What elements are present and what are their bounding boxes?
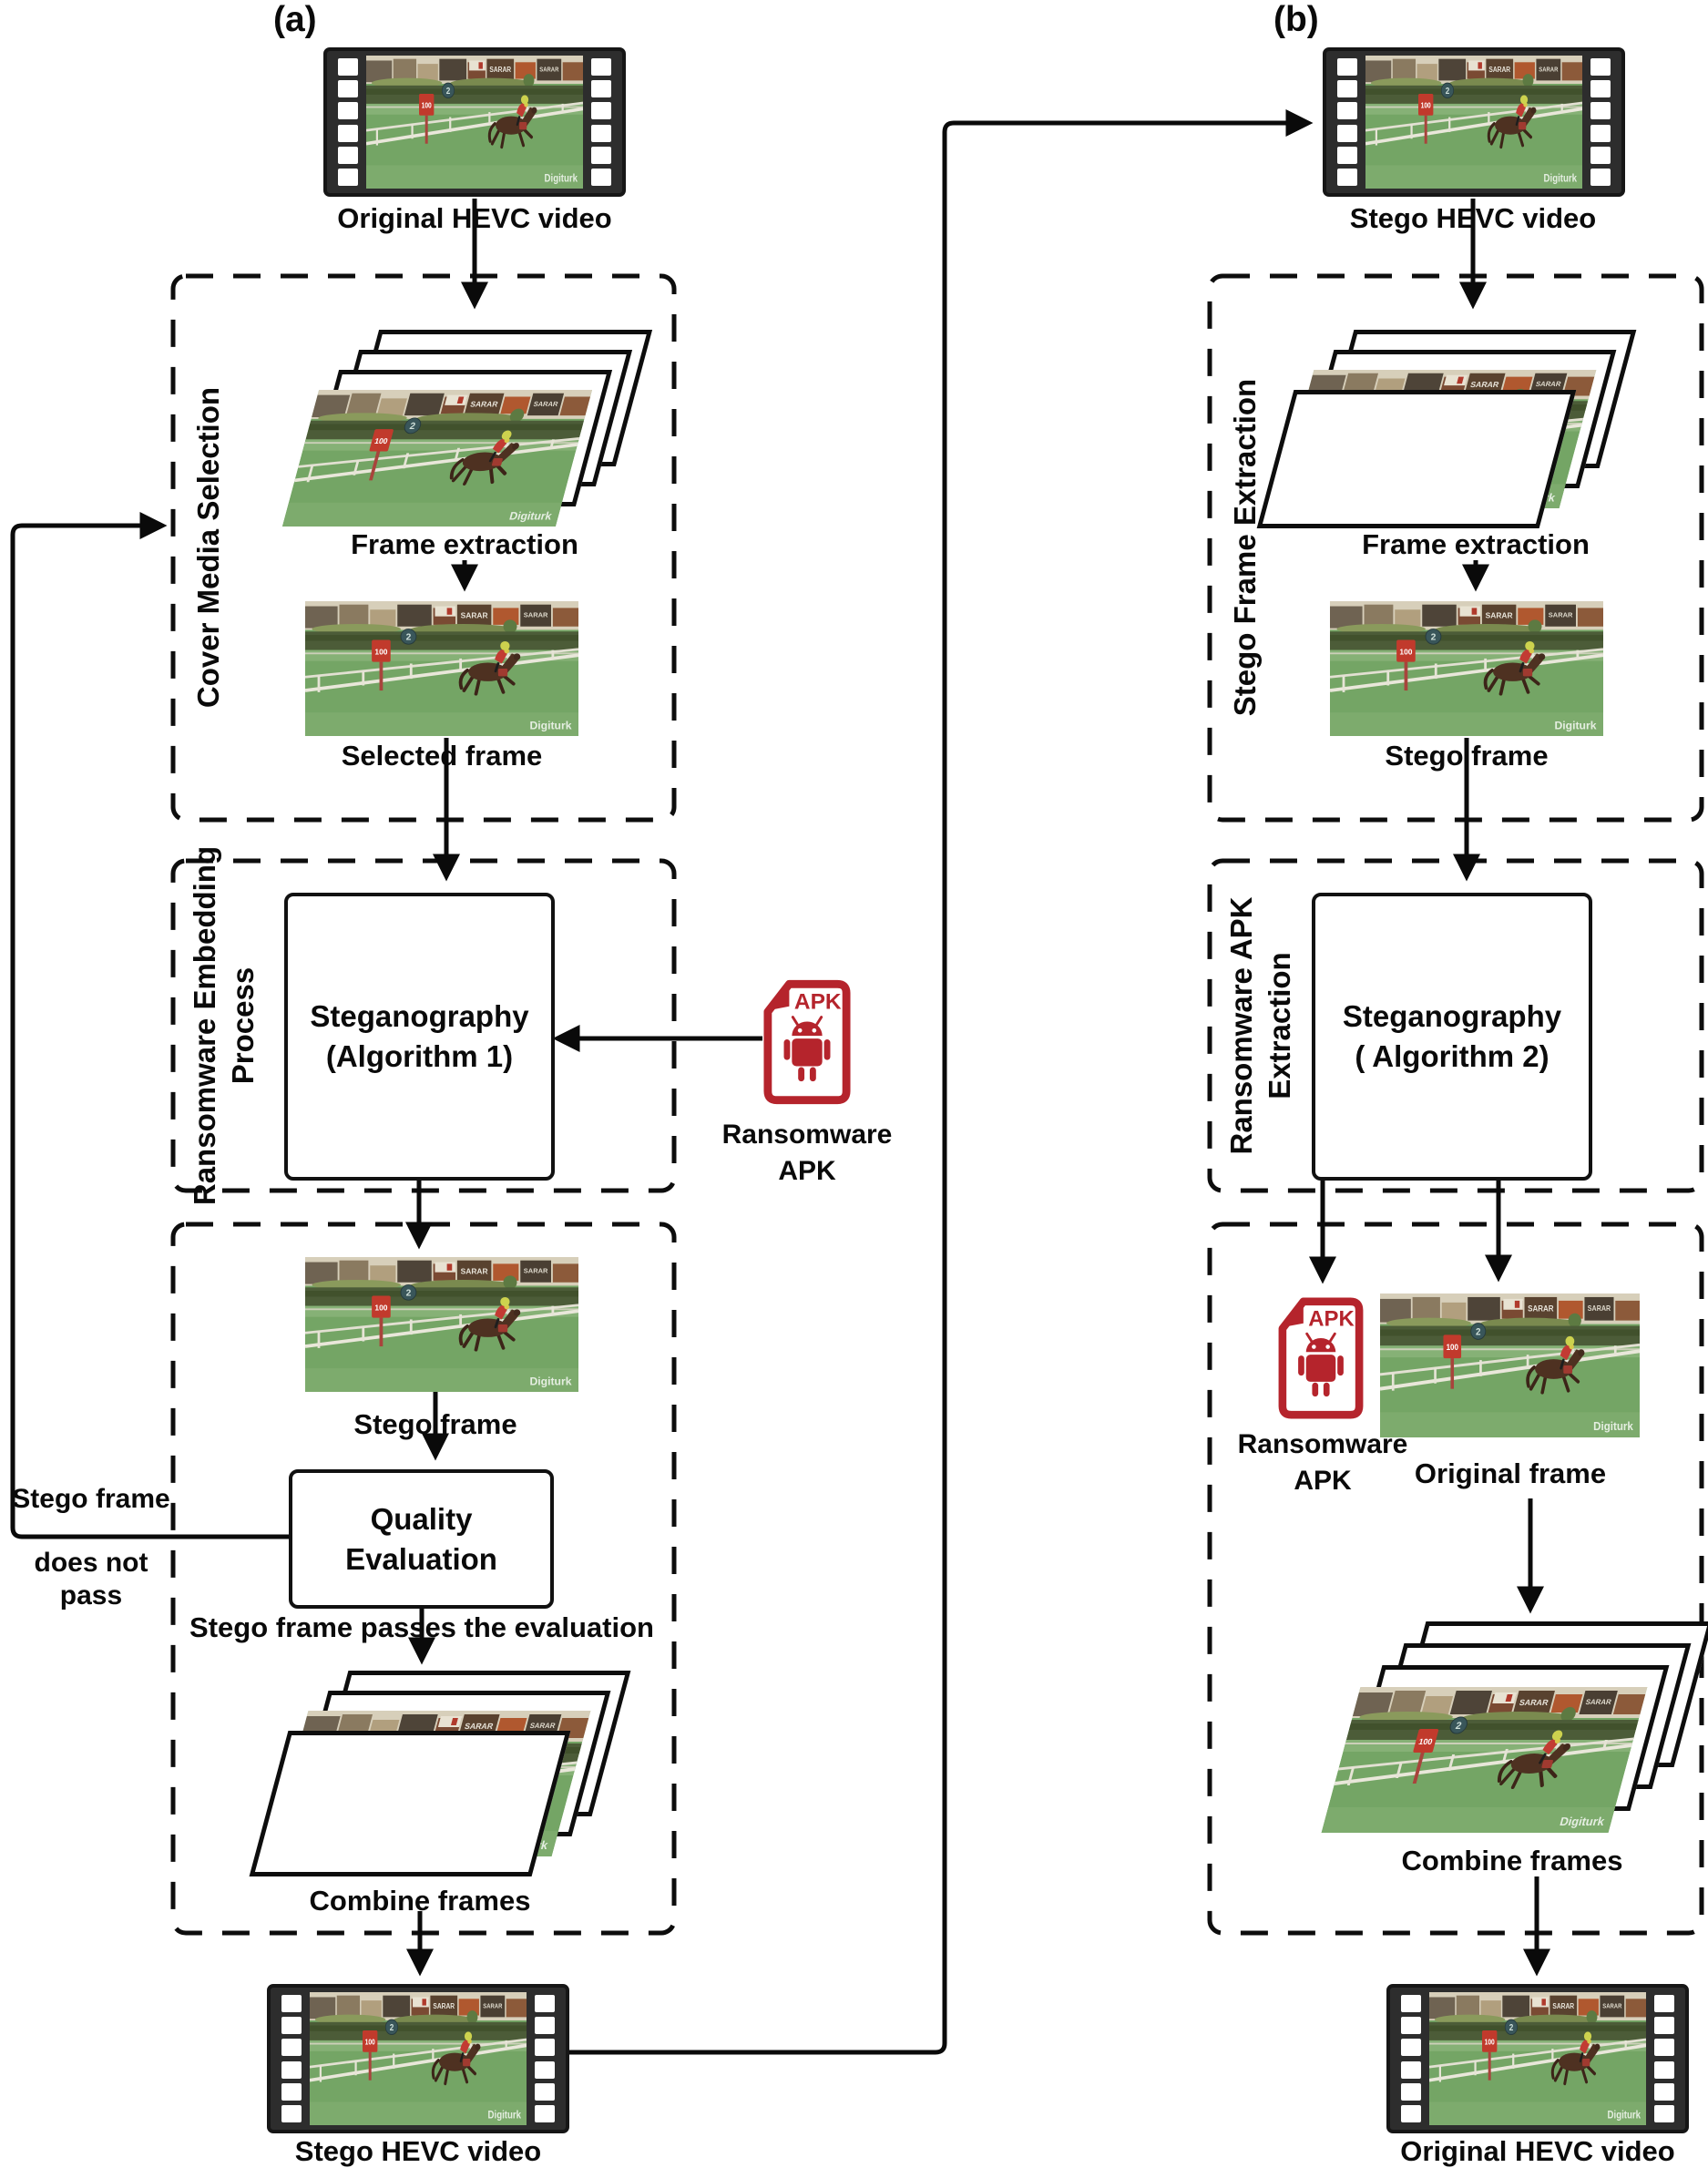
- label-stego-hevc-video-a: Stego HEVC video: [236, 2135, 600, 2168]
- connector-a-stego-video-to-b: [569, 123, 1306, 2052]
- video-frame-image: [310, 1992, 527, 2125]
- quality-evaluation-box: Quality Evaluation: [289, 1469, 554, 1609]
- diagram-canvas: SARAR SARAR: [0, 0, 1708, 2178]
- label-original-frame-b: Original frame: [1374, 1457, 1647, 1490]
- film-sprockets-left: [1393, 1992, 1429, 2125]
- title-ransomware-embedding-process: Ransomware Embedding Process: [186, 743, 264, 1308]
- label-original-hevc-video-a: Original HEVC video: [292, 202, 657, 235]
- label-does-not-pass-line1: Stego frame: [0, 1483, 182, 1516]
- video-frame-image: [366, 56, 583, 189]
- original-frame-image-b: [1380, 1294, 1640, 1437]
- film-sprockets-right: [583, 56, 619, 189]
- label-ransomware-apk-a: Ransomware APK: [716, 1117, 898, 1190]
- label-frame-extraction-b: Frame extraction: [1339, 528, 1612, 561]
- title-ransomware-apk-extraction: Ransomware APK Extraction: [1222, 743, 1301, 1308]
- label-stego-frame-a: Stego frame: [299, 1408, 572, 1441]
- film-strip-original-hevc-b: [1386, 1984, 1689, 2133]
- video-frame-image: [1365, 56, 1582, 189]
- combined-frame-image: [1322, 1687, 1648, 1833]
- film-sprockets-right: [1646, 1992, 1682, 2125]
- label-selected-frame: Selected frame: [305, 740, 578, 772]
- film-strip-original-hevc-a: [323, 47, 626, 197]
- film-sprockets-left: [273, 1992, 310, 2125]
- stego-frame-image-a: [305, 1257, 578, 1392]
- steganography-algorithm1-box: Steganography (Algorithm 1): [284, 893, 555, 1181]
- label-combine-frames-a: Combine frames: [283, 1885, 557, 1917]
- ransomware-apk-icon-b: [1277, 1297, 1365, 1419]
- label-stego-hevc-video-b: Stego HEVC video: [1291, 202, 1655, 235]
- film-sprockets-left: [330, 56, 366, 189]
- film-sprockets-left: [1329, 56, 1365, 189]
- label-frame-extraction-a: Frame extraction: [328, 528, 601, 561]
- panel-a-tag: (a): [273, 0, 317, 40]
- film-sprockets-right: [1582, 56, 1619, 189]
- film-strip-stego-hevc-b: [1323, 47, 1625, 197]
- label-stego-frame-b: Stego frame: [1330, 740, 1603, 772]
- film-strip-stego-hevc-a: [267, 1984, 569, 2133]
- label-combine-frames-b: Combine frames: [1376, 1845, 1649, 1877]
- film-sprockets-right: [527, 1992, 563, 2125]
- extracted-frame-image: [282, 390, 592, 527]
- label-passes-evaluation: Stego frame passes the evaluation: [121, 1611, 722, 1644]
- ransomware-apk-icon-a: [762, 979, 852, 1105]
- selected-frame-image: [305, 601, 578, 736]
- blank-frame-front: [250, 1731, 571, 1876]
- label-original-hevc-video-b: Original HEVC video: [1355, 2135, 1708, 2168]
- blank-frame-front: [1257, 390, 1577, 528]
- panel-b-tag: (b): [1273, 0, 1319, 40]
- video-frame-image: [1429, 1992, 1646, 2125]
- steganography-algorithm2-box: Steganography ( Algorithm 2): [1312, 893, 1592, 1181]
- stego-frame-image-b: [1330, 601, 1603, 736]
- label-does-not-pass-line2: does not pass: [0, 1547, 182, 1612]
